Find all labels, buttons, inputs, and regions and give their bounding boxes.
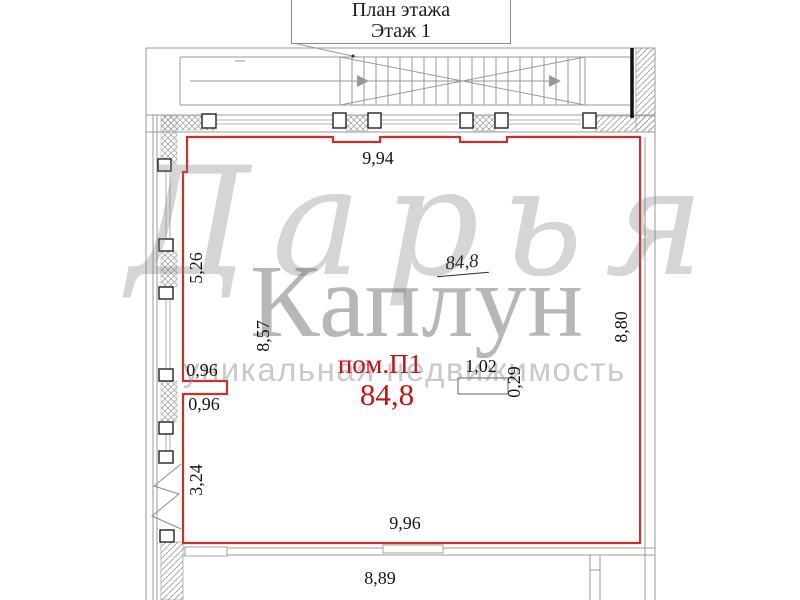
room-name-label: пом.П1 [315,350,445,378]
floor-plan-drawing [0,0,800,600]
dim-column-depth: 0,29 [504,357,524,407]
room-area-label: 84,8 [322,379,452,411]
floor-plan-page: Дарья Каплун уникальная недвижимость Пла… [0,0,800,600]
staircase [190,55,585,106]
plan-title: План этажа [292,0,510,21]
floor-subtitle: Этаж 1 [292,21,510,42]
dim-top: 9,94 [353,148,403,168]
dim-left-mid: 8,57 [253,306,273,366]
dim-bottom-outer: 8,89 [355,568,405,588]
bottom-sills [185,545,443,556]
area-note: 84,8 [435,250,489,277]
stair-direction-arrow [357,75,369,87]
dim-notch-top: 0,96 [177,360,227,380]
column-outline [458,378,508,394]
room-outline-p1 [183,137,640,543]
dim-left-lower: 3,24 [186,450,206,510]
dim-left-upper: 5,26 [186,238,206,298]
wall-caps [158,113,596,542]
stair-direction-arrow [549,75,561,87]
title-block: План этажа Этаж 1 [291,0,511,44]
dim-bottom: 9,96 [380,513,430,533]
dim-right: 8,80 [611,297,631,357]
dim-notch-bottom: 0,96 [179,394,229,414]
door-swing [152,464,181,529]
dim-column-width: 1,02 [456,356,506,376]
